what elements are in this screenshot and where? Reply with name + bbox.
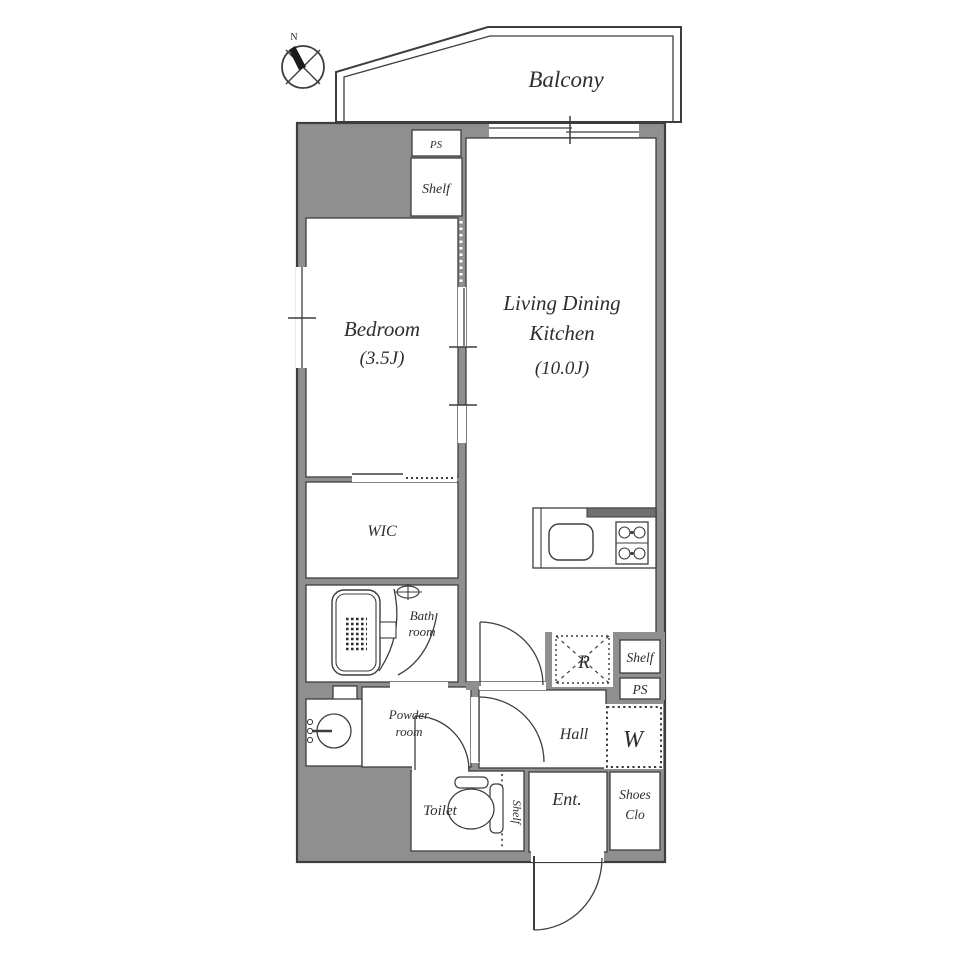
refrigerator-label: R: [577, 652, 590, 673]
ldk-balcony-window-gap: [489, 124, 639, 137]
bath-door-opening: [390, 682, 448, 688]
powder-label-line2: room: [396, 724, 423, 739]
ps-top-label: PS: [429, 139, 443, 151]
ldk-door-opening: [479, 682, 546, 690]
compass-icon: N: [282, 32, 324, 88]
wall-post-left-of-fridge: [545, 632, 552, 690]
bathroom-label-line1: Bath: [410, 608, 435, 623]
bathtub-icon: [332, 590, 380, 675]
bath-counter-icon: [380, 622, 396, 638]
room-ldk: [466, 138, 656, 682]
shoes-closet-label-line2: Clo: [625, 807, 645, 822]
wic-label: WIC: [367, 523, 397, 540]
ldk-label-line1: Living Dining: [502, 291, 620, 315]
kitchen-counter: [533, 508, 656, 568]
toilet-door-opening: [412, 766, 468, 772]
partition-door-panel-2: [458, 405, 466, 443]
shelf-right-label: Shelf: [627, 650, 656, 665]
floor-plan-page: Balcony N: [0, 0, 960, 959]
room-entrance: [529, 772, 607, 852]
entrance-label: Ent.: [551, 789, 582, 809]
entrance-door-opening: [531, 850, 604, 862]
bedroom-area-label: (3.5J): [360, 348, 405, 369]
compass-n-label: N: [290, 32, 297, 43]
bedroom-label: Bedroom: [344, 317, 420, 341]
balcony-label: Balcony: [528, 67, 604, 92]
counter-backsplash: [587, 508, 656, 517]
powder-label-line1: Powder: [388, 707, 430, 722]
ps-right-label: PS: [632, 682, 648, 697]
kitchen-sink-icon: [549, 524, 593, 560]
vanity-unit: [306, 699, 362, 766]
floor-plan-drawing: Balcony N: [0, 0, 960, 959]
hall-label: Hall: [559, 726, 589, 743]
wic-opening: [352, 471, 457, 482]
powder-nook: [333, 686, 357, 700]
ldk-area-label: (10.0J): [535, 358, 589, 379]
shoes-closet-label-line1: Shoes: [619, 787, 651, 802]
toilet-lid-shelf: [455, 777, 488, 788]
partition-door-panel-1: [458, 287, 466, 347]
ldk-label-line2: Kitchen: [528, 321, 594, 345]
toilet-label: Toilet: [423, 803, 457, 819]
washer-label: W: [623, 727, 645, 753]
toilet-shelf-label: Shelf: [510, 800, 524, 826]
balcony: Balcony: [336, 27, 681, 122]
powder-door-opening: [471, 697, 479, 763]
entrance-door-arc: [534, 858, 602, 930]
balcony-outer-rail: [336, 27, 681, 122]
bathroom-label-line2: room: [409, 624, 436, 639]
shelf-top-label: Shelf: [422, 182, 452, 197]
